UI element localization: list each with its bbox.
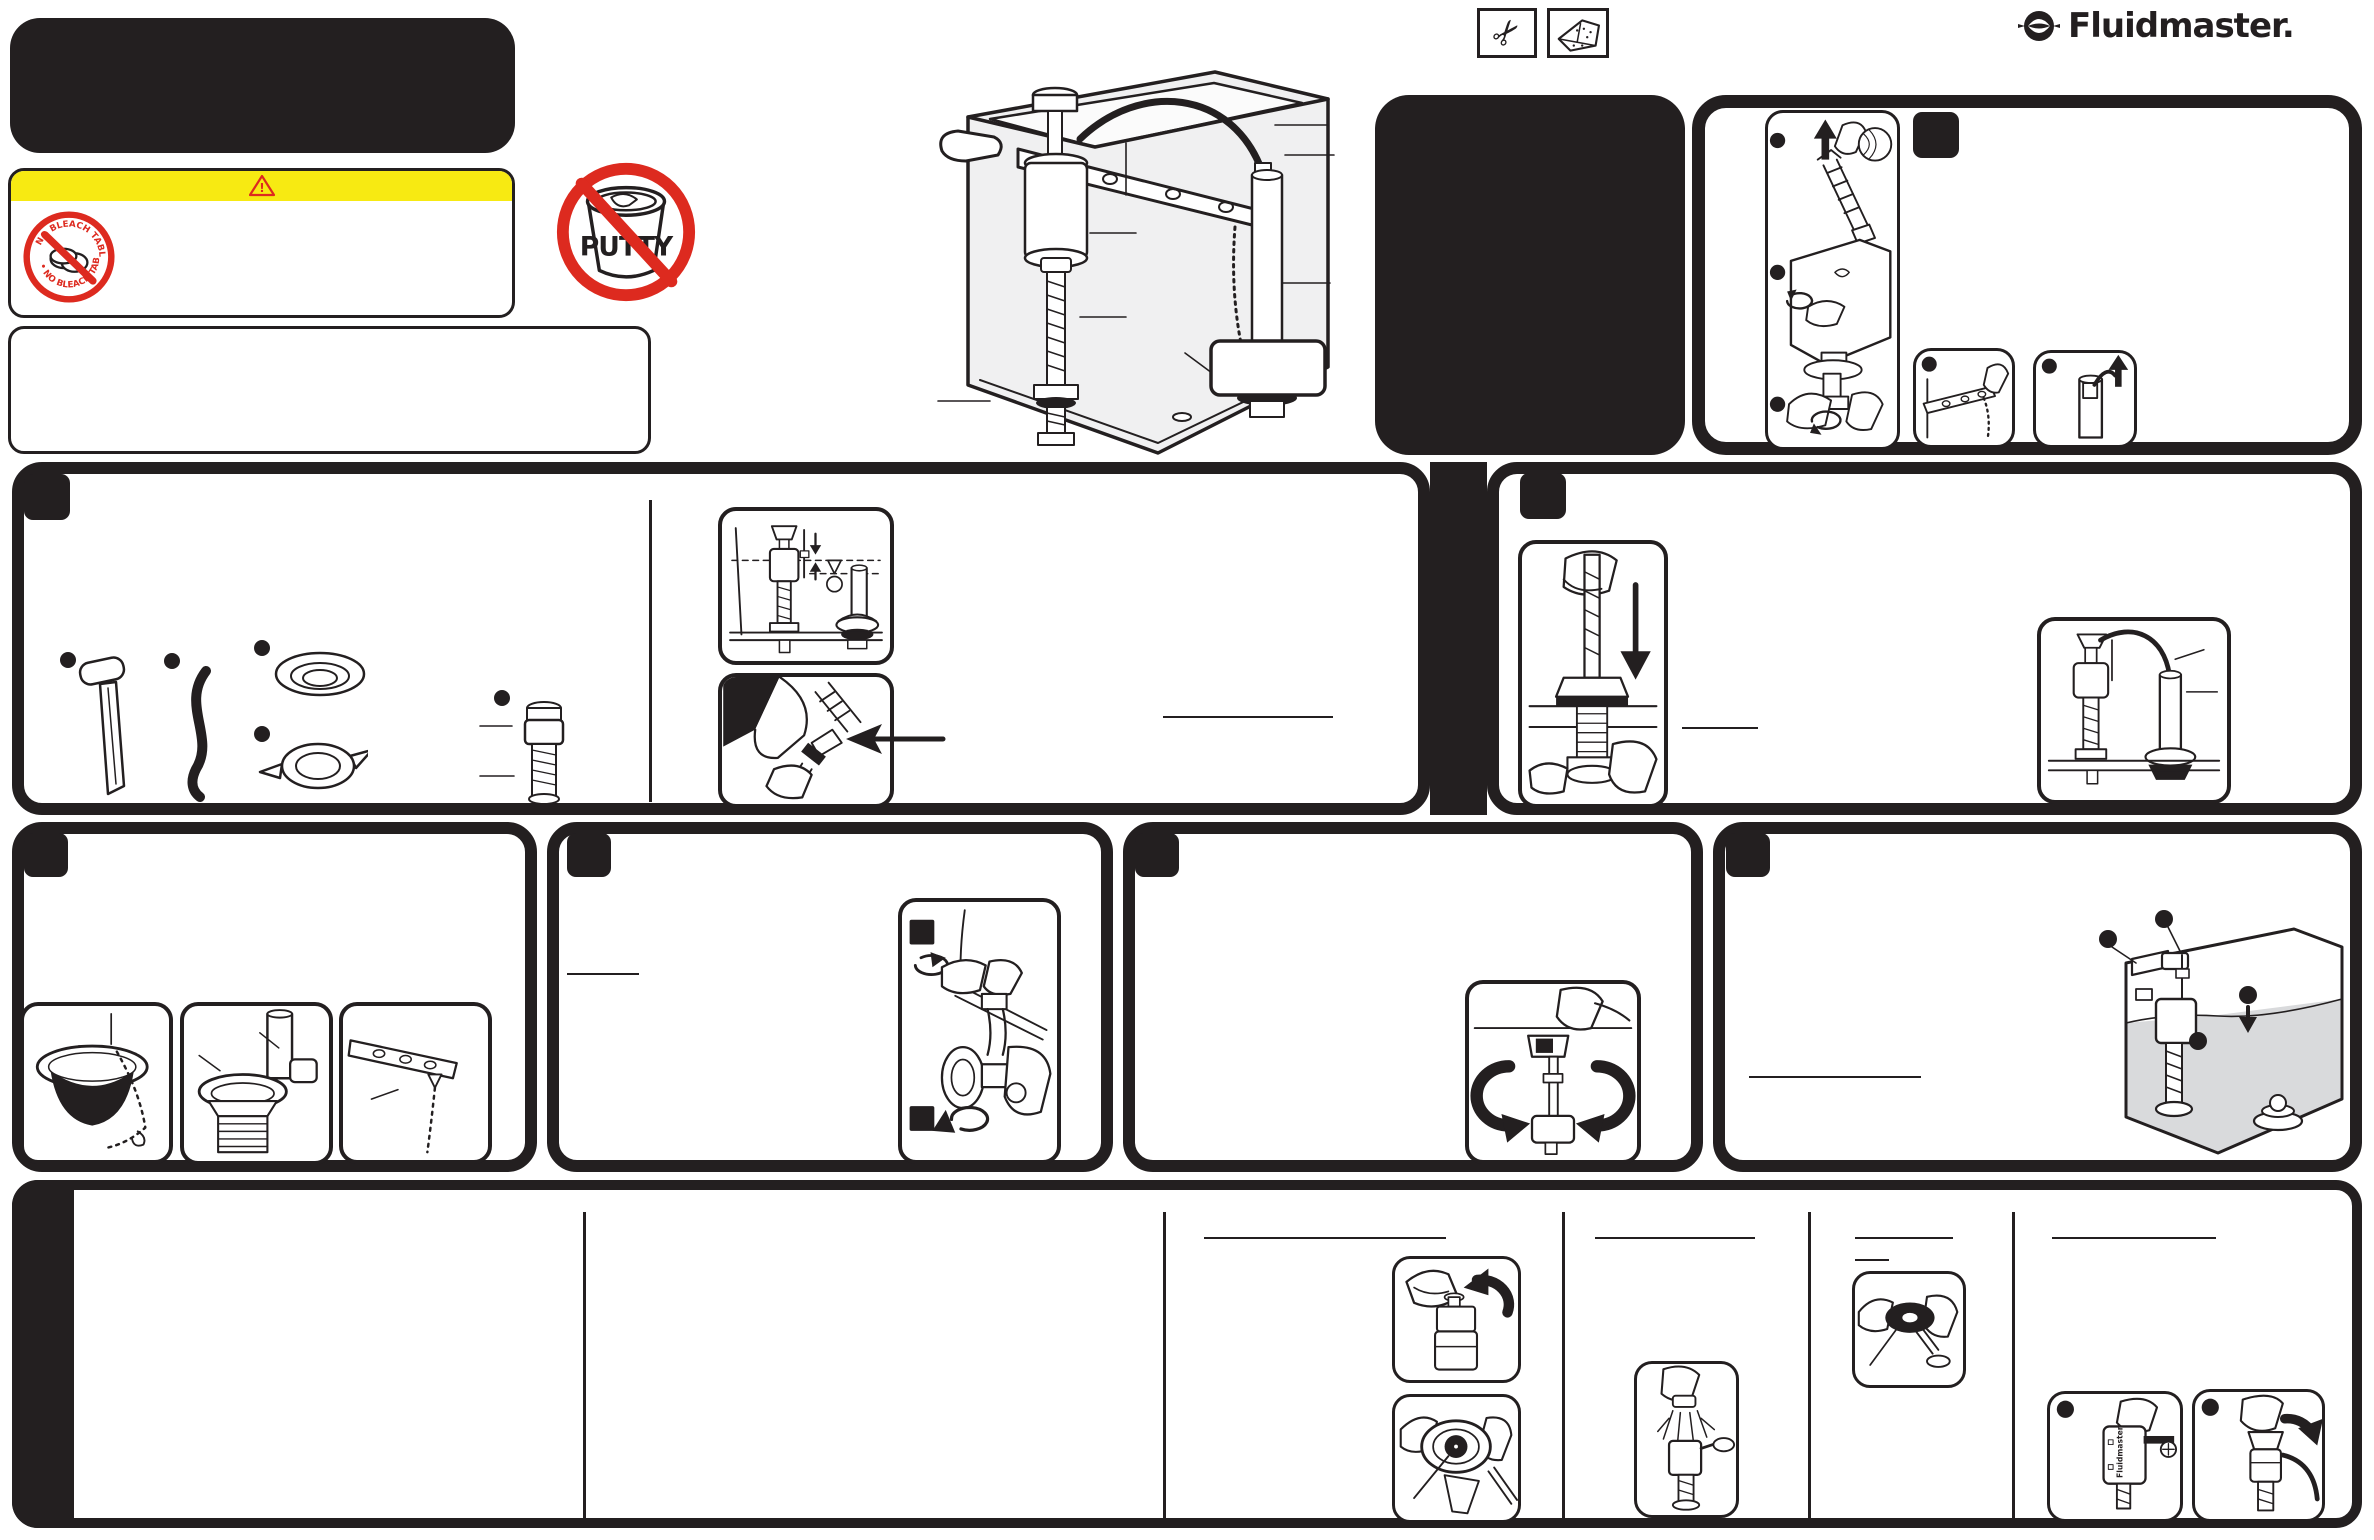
illustration-flapper [20, 1002, 173, 1164]
black-info-panel [1375, 95, 1685, 455]
float-cup-brand-label: Fluidmaster [2116, 1426, 2125, 1478]
blank-text-line-6 [1595, 1237, 1755, 1239]
blank-text-line-2 [1682, 727, 1758, 729]
panel-separator-block [1430, 462, 1487, 815]
no-bleach-tablets-icon: NO BLEACH TABLETS • NO BLEACH TABLETS • [23, 209, 115, 305]
step-number-box-supply [567, 833, 611, 877]
step-number-box-parts [24, 474, 70, 520]
illustration-flush-valve-spray [1634, 1361, 1739, 1518]
warning-header-bar: ! [11, 171, 512, 201]
illustration-filled-tank [2098, 903, 2360, 1167]
notes-box [8, 326, 651, 454]
pointer-arrow-left [838, 722, 948, 756]
illustration-lever-chain [339, 1002, 492, 1164]
illustration-adjust-rod [1465, 980, 1641, 1164]
troubleshooting-left-block [12, 1180, 74, 1528]
illustration-reattach-cap [2192, 1389, 2325, 1522]
sponge-tool-box [1547, 8, 1609, 58]
step-number-box-remove [1913, 112, 1959, 158]
illustration-push-valve-down [1518, 540, 1668, 808]
step-number-box-install [1520, 473, 1566, 519]
illustration-remove-refill-tube [2033, 350, 2137, 448]
scissors-tool-box: ✂ [1477, 8, 1537, 58]
blank-text-line-7 [1855, 1237, 1953, 1239]
step-number-box-flapper [24, 833, 68, 877]
brand-logo: Fluidmaster. [2018, 6, 2294, 46]
illustration-flush-valve-seat [180, 1002, 333, 1165]
blank-text-line-1 [1163, 716, 1333, 718]
part-fill-valve [468, 688, 580, 806]
illustration-remove-old-valve [1765, 110, 1900, 450]
illustration-connect-supply [898, 898, 1061, 1164]
blank-text-line-9 [2052, 1237, 2216, 1239]
step-number-box-adjust [1135, 833, 1179, 877]
illustration-water-level-diagram [718, 507, 894, 665]
scissors-icon: ✂ [1483, 9, 1532, 57]
troubleshooting-strip [12, 1180, 2362, 1528]
title-block [10, 18, 515, 153]
blank-text-line-5 [1204, 1237, 1446, 1239]
strip-divider-3 [1562, 1212, 1565, 1522]
strip-divider-5 [2012, 1212, 2015, 1522]
illustration-remove-cap [1392, 1256, 1521, 1383]
instruction-sheet-page: ! NO BLEACH TABLETS • NO BLEACH TABLETS … [0, 0, 2374, 1540]
warning-symbol: ! [259, 181, 264, 195]
brand-logo-text: Fluidmaster. [2068, 6, 2294, 46]
illustration-valve-flapper-diagram [2037, 617, 2231, 804]
blank-text-line-8 [1855, 1259, 1889, 1261]
blank-text-line-4 [1749, 1076, 1921, 1078]
part-locknut [252, 718, 368, 803]
strip-divider-1 [583, 1212, 586, 1522]
illustration-seal-in-hands [1852, 1271, 1966, 1388]
strip-divider-4 [1808, 1212, 1811, 1522]
illustration-cap-seal-underside [1392, 1394, 1521, 1523]
part-flush-lever [58, 640, 150, 805]
warning-triangle-icon: ! [249, 174, 275, 198]
warning-box: ! NO BLEACH TABLETS • NO BLEACH TABLETS … [8, 168, 515, 318]
strip-divider-2 [1163, 1212, 1166, 1522]
parts-divider-line [649, 500, 652, 802]
illustration-float-cup: Fluidmaster [2047, 1391, 2183, 1522]
part-cone-washer [252, 632, 368, 710]
fluidmaster-mark-icon [2018, 6, 2060, 46]
illustration-unhook-chain [1913, 348, 2015, 448]
blank-text-line-3 [567, 973, 639, 975]
sponge-icon [1552, 12, 1604, 54]
tank-overview-diagram [930, 55, 1360, 460]
part-refill-tube [162, 645, 232, 805]
step-number-box-water-level [1726, 833, 1770, 877]
no-putty-icon: PUTTY [552, 158, 700, 306]
